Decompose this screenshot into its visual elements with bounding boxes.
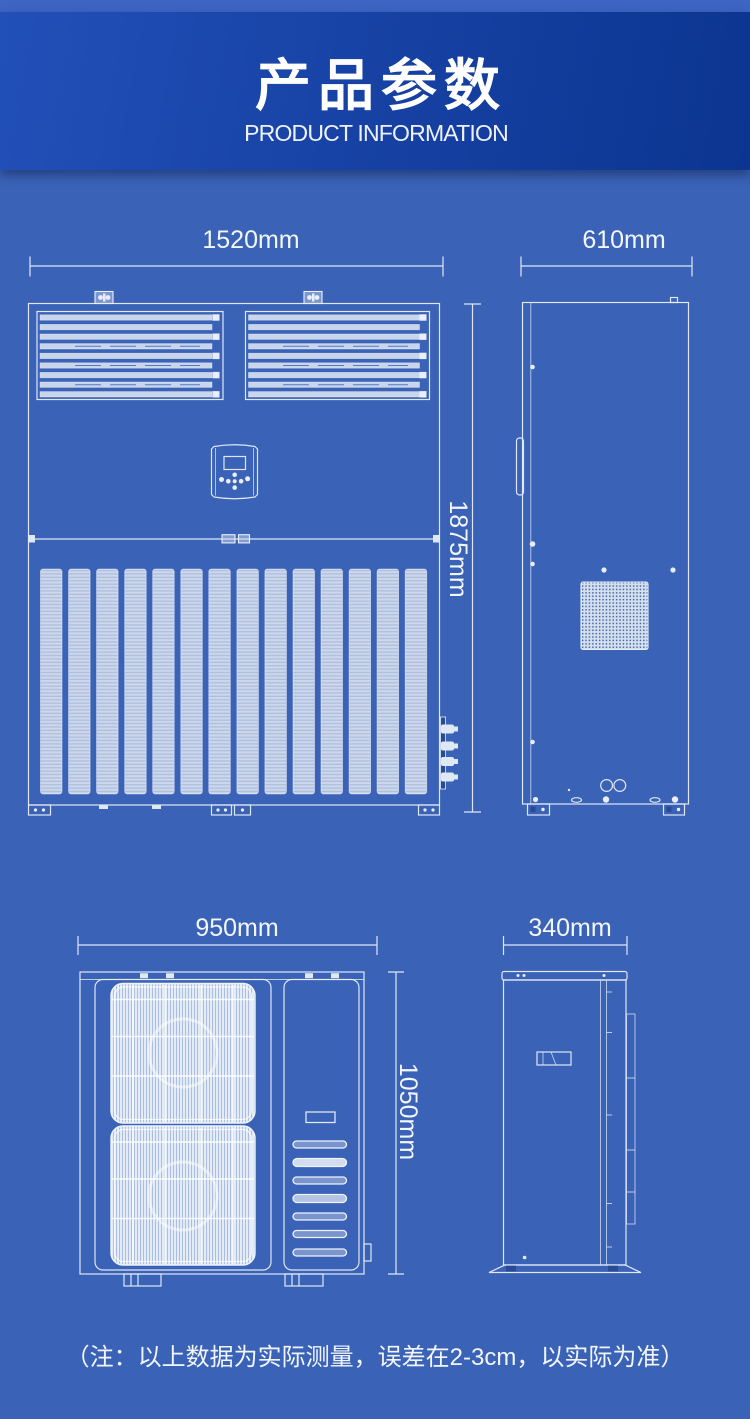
svg-text:1050mm: 1050mm xyxy=(394,1063,422,1160)
svg-text:340mm: 340mm xyxy=(528,914,611,942)
svg-text:950mm: 950mm xyxy=(195,914,278,942)
svg-text:1520mm: 1520mm xyxy=(202,226,299,254)
svg-text:610mm: 610mm xyxy=(582,226,665,254)
svg-text:1875mm: 1875mm xyxy=(444,500,472,597)
